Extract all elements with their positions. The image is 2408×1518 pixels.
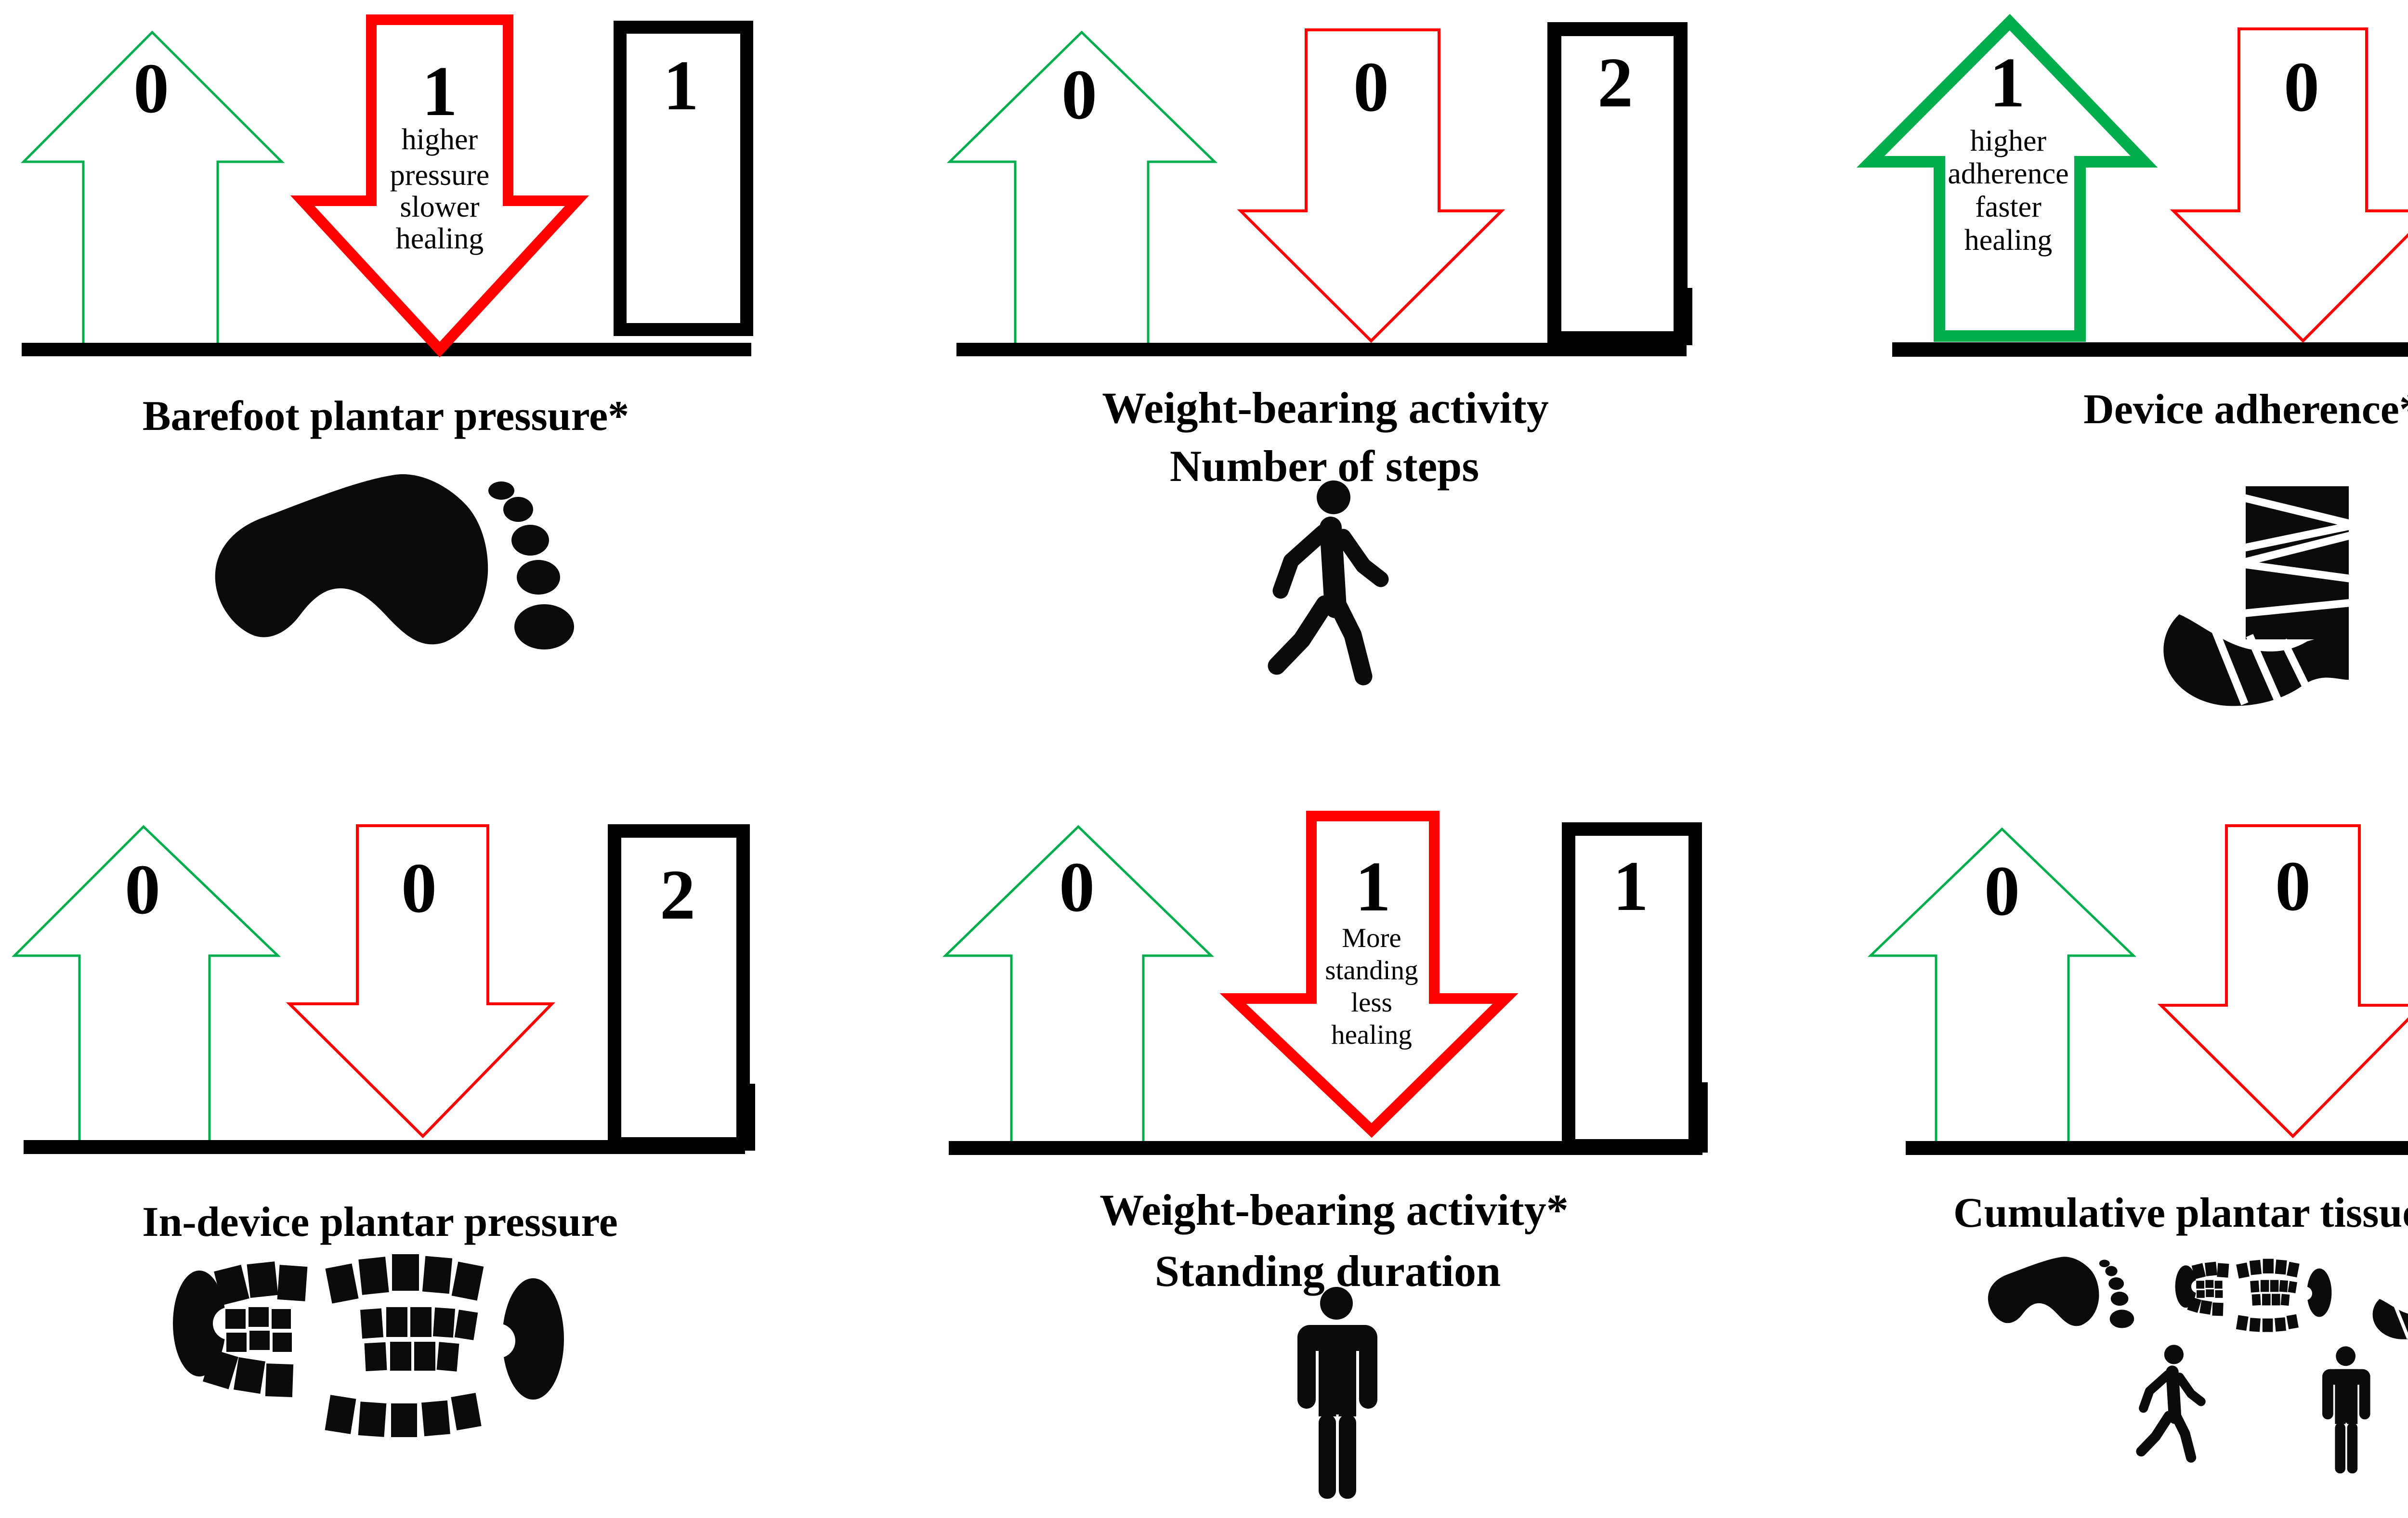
svg-text:1: 1 — [422, 52, 458, 131]
svg-text:0: 0 — [2284, 48, 2319, 127]
svg-text:less: less — [1351, 987, 1392, 1018]
svg-text:faster: faster — [1975, 191, 2042, 223]
svg-text:0: 0 — [401, 849, 437, 928]
svg-text:0: 0 — [1984, 852, 2020, 931]
svg-text:healing: healing — [1331, 1020, 1412, 1050]
svg-text:1: 1 — [663, 46, 699, 125]
svg-text:healing: healing — [396, 222, 484, 255]
svg-text:0: 0 — [1353, 48, 1389, 127]
svg-text:0: 0 — [1061, 55, 1097, 134]
svg-text:0: 0 — [2275, 847, 2311, 926]
svg-text:higher: higher — [402, 123, 478, 156]
svg-text:2: 2 — [660, 856, 695, 934]
svg-text:Cumulative plantar tissue stre: Cumulative plantar tissue stress — [1953, 1190, 2408, 1236]
svg-text:Device adherence*: Device adherence* — [2083, 386, 2408, 433]
svg-text:Barefoot plantar pressure*: Barefoot plantar pressure* — [143, 393, 629, 440]
svg-text:1: 1 — [1355, 847, 1391, 926]
svg-text:1: 1 — [1989, 43, 2025, 122]
svg-text:In-device plantar pressure: In-device plantar pressure — [142, 1199, 618, 1246]
svg-text:Weight-bearing activity*: Weight-bearing activity* — [1099, 1185, 1569, 1234]
svg-text:1: 1 — [1613, 847, 1649, 926]
svg-text:0: 0 — [1059, 848, 1095, 927]
svg-text:pressure: pressure — [390, 159, 490, 192]
svg-text:healing: healing — [1964, 224, 2053, 257]
svg-text:adherence: adherence — [1948, 157, 2068, 190]
svg-text:Standing duration: Standing duration — [1155, 1246, 1501, 1296]
svg-text:More: More — [1342, 923, 1401, 953]
svg-text:0: 0 — [133, 49, 169, 128]
svg-text:slower: slower — [400, 191, 480, 223]
svg-text:Weight-bearing activity: Weight-bearing activity — [1102, 383, 1549, 432]
svg-text:2: 2 — [1597, 43, 1633, 122]
svg-text:0: 0 — [125, 850, 160, 929]
svg-text:higher: higher — [1970, 125, 2047, 157]
svg-text:standing: standing — [1325, 955, 1418, 986]
